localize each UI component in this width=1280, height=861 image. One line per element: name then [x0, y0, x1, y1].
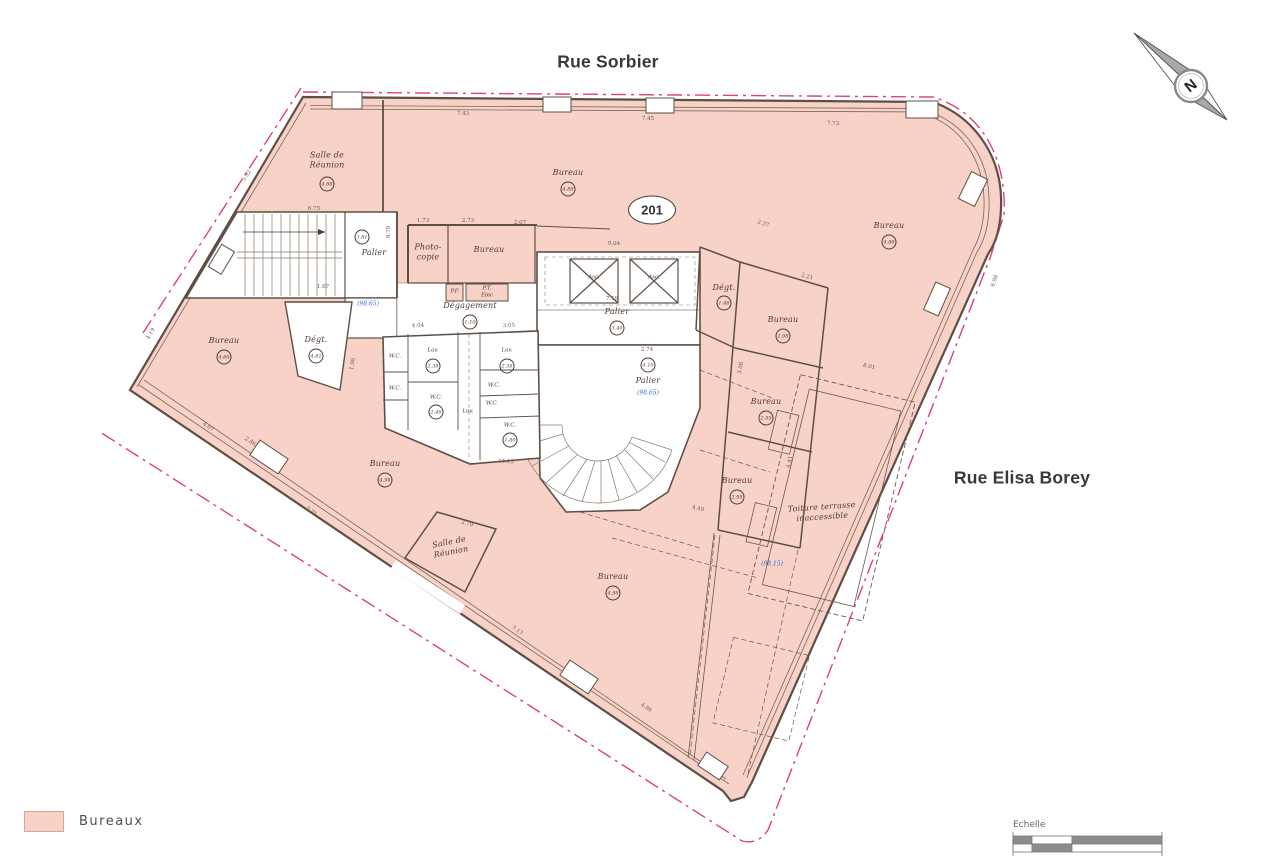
room-label-degagement: Dégagement [443, 301, 497, 311]
room-label-bureau-r2: Bureau [751, 397, 782, 407]
dim-annotation: 2.73 [462, 218, 474, 224]
north-compass-icon [1134, 33, 1227, 120]
room-label-bureau-copy: Bureau [474, 245, 505, 255]
room-value-bureau-top: 4.88 [561, 182, 576, 197]
room-label-degt-right: Dégt. [712, 283, 735, 293]
room-value-palier-center: 3.40 [610, 321, 625, 336]
scale-bar [1013, 832, 1162, 856]
dim-annotation: 7.43 [457, 111, 469, 117]
dim-annotation: 1.67 [317, 284, 329, 290]
legend-swatch-bureaux [24, 811, 64, 832]
room-value-bureau-r1: 2.98 [776, 329, 791, 344]
room-label-wc-e2: W.C. [486, 401, 498, 408]
room-label-bureau-r3: Bureau [722, 476, 753, 486]
dim-annotation: 9.04 [608, 241, 620, 247]
dim-annotation: 6.75 [308, 206, 320, 212]
room-label-lav-nw: Lav. [427, 348, 438, 355]
room-label-salle-reunion-nw: Salle de Réunion [310, 150, 345, 169]
room-label-palier-center: Palier [605, 307, 630, 317]
room-label-palier-nw: Palier [362, 248, 387, 258]
room-value-bureau-r3: 2.95 [730, 490, 745, 505]
dim-annotation: 7.19 [606, 296, 618, 302]
room-label-asc-2: Asc. [648, 275, 660, 282]
legend: Bureaux [24, 811, 144, 832]
room-label-asc-1: Asc. [588, 275, 600, 282]
room-label-lav-c: Lav. [462, 409, 473, 416]
room-label-degt-left: Dégt. [304, 335, 327, 345]
street-label-rue-elisa-borey: Rue Elisa Borey [954, 468, 1090, 489]
room-value-bureau-left: 4.60 [217, 350, 232, 365]
room-label-palier-main: Palier [636, 376, 661, 386]
room-value-bureau-r2: 2.95 [759, 411, 774, 426]
room-label-bureau-r1: Bureau [768, 315, 799, 325]
room-label-pf: P.F. [450, 289, 459, 296]
floor-plan-svg [0, 0, 1280, 861]
room-value-degt-left: 4.82 [309, 349, 324, 364]
floor-plan-canvas: Rue Sorbier Rue Elisa Borey 201 N Salle … [0, 0, 1280, 861]
scale-label: Echelle [1013, 820, 1045, 830]
legend-label-bureaux: Bureaux [79, 814, 144, 829]
room-value-bureau-s: 4.98 [606, 586, 621, 601]
room-label-wc-e: W.C. [488, 383, 500, 390]
room-label-bureau-ne: Bureau [874, 221, 905, 231]
room-value-salle-reunion-nw: 4.86 [320, 177, 335, 192]
dim-annotation: 3.05 [503, 323, 515, 329]
room-label-bureau-sw: Bureau [370, 459, 401, 469]
room-label-bureau-left: Bureau [209, 336, 240, 346]
room-label-pt-elec: P.T. Elec [481, 285, 493, 298]
room-value-degagement: 1.10 [463, 315, 478, 330]
unit-number-badge: 201 [628, 196, 676, 225]
room-value-bureau-sw: 4.98 [378, 473, 393, 488]
dim-annotation: 4.04 [412, 323, 424, 329]
room-label-wc-c: W.C. [430, 395, 442, 402]
dim-annotation: 8.79 [386, 226, 392, 238]
room-label-lav-e: Lav. [501, 348, 512, 355]
room-value-bureau-ne: 4.88 [882, 235, 897, 250]
room-value-palier-main: 4.10 [641, 358, 656, 373]
dim-annotation: 7.45 [642, 116, 654, 122]
level-note-terrace: (98.15) [761, 561, 783, 568]
room-label-bureau-s: Bureau [598, 572, 629, 582]
dim-annotation: 7.73 [827, 121, 839, 127]
room-label-wc-w: W.C. [389, 386, 401, 393]
room-value-wc-s: 1.80 [503, 433, 518, 448]
room-value-degt-right: 1.46 [717, 296, 732, 311]
room-value-palier-nw: 3.81 [355, 230, 370, 245]
level-note-palier-main: (98.65) [637, 390, 659, 397]
street-label-rue-sorbier: Rue Sorbier [557, 52, 658, 73]
dim-annotation: 1.73 [417, 218, 429, 224]
room-value-wc-c: 2.48 [429, 405, 444, 420]
dim-annotation: 2.07 [514, 220, 526, 226]
room-value-lav-nw: 2.38 [426, 359, 441, 374]
room-label-wc-s: W.C. [504, 423, 516, 430]
room-value-lav-e: 2.38 [500, 359, 515, 374]
dim-annotation: 14.13 [498, 459, 514, 466]
dim-annotation: 2.74 [641, 347, 653, 353]
level-note-stair-nw: (98.65) [357, 301, 379, 308]
room-label-photocopie: Photo- copie [414, 242, 441, 261]
room-label-bureau-top: Bureau [553, 168, 584, 178]
room-label-wc-nw: W.C. [389, 354, 401, 361]
